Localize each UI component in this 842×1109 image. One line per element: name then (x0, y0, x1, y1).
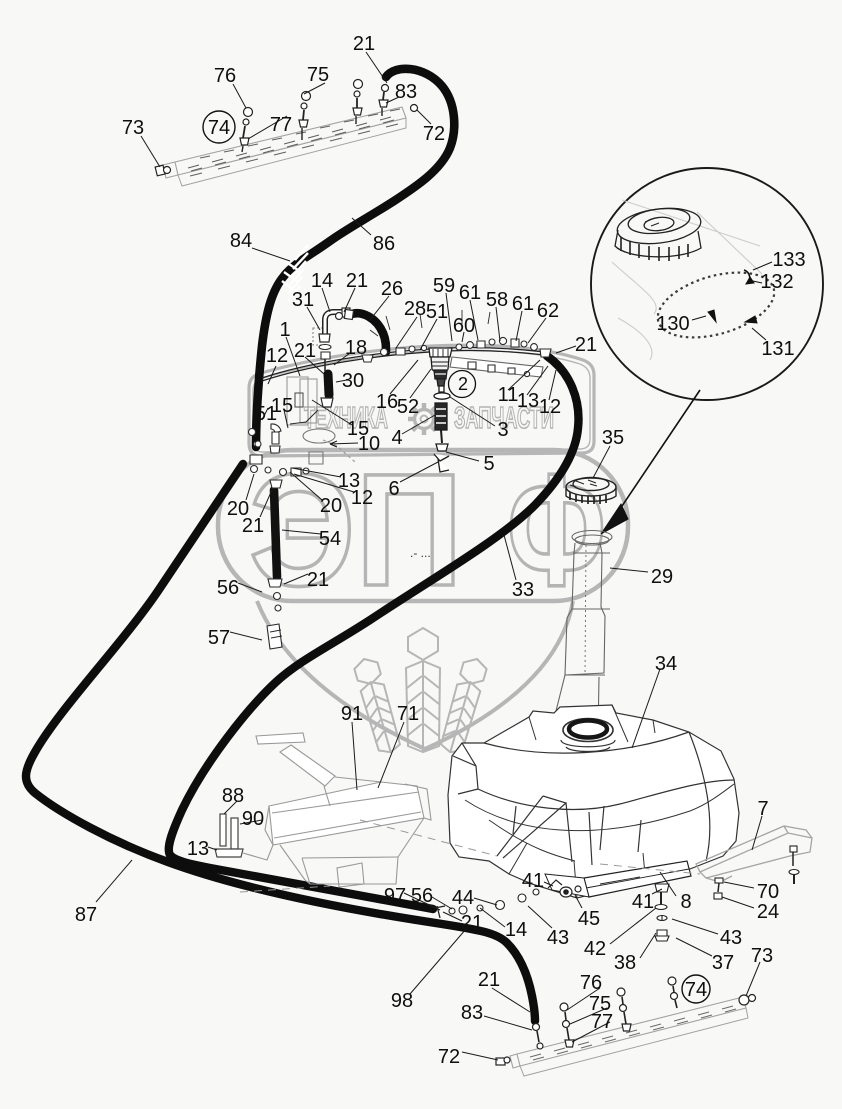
svg-text:8: 8 (680, 891, 691, 913)
svg-text:30: 30 (342, 370, 364, 392)
svg-text:12: 12 (539, 396, 561, 418)
svg-text:35: 35 (602, 427, 624, 449)
svg-text:10: 10 (358, 433, 380, 455)
svg-text:1: 1 (279, 319, 290, 341)
svg-text:51: 51 (426, 301, 448, 323)
svg-text:15: 15 (271, 395, 293, 417)
svg-text:31: 31 (292, 289, 314, 311)
svg-text:76: 76 (580, 972, 602, 994)
svg-text:44: 44 (452, 887, 474, 909)
svg-text:84: 84 (230, 230, 252, 252)
svg-text:12: 12 (351, 487, 373, 509)
svg-text:37: 37 (712, 952, 734, 974)
svg-text:130: 130 (656, 313, 689, 335)
svg-text:98: 98 (391, 990, 413, 1012)
svg-text:76: 76 (214, 65, 236, 87)
svg-text:21: 21 (461, 912, 483, 934)
svg-text:20: 20 (320, 495, 342, 517)
svg-text:21: 21 (478, 969, 500, 991)
svg-text:58: 58 (486, 289, 508, 311)
svg-text:21: 21 (294, 340, 316, 362)
svg-text:88: 88 (222, 785, 244, 807)
svg-text:12: 12 (266, 345, 288, 367)
svg-text:43: 43 (720, 927, 742, 949)
svg-text:75: 75 (307, 64, 329, 86)
svg-text:60: 60 (453, 315, 475, 337)
svg-text:41: 41 (522, 870, 544, 892)
svg-text:97: 97 (384, 885, 406, 907)
svg-text:86: 86 (373, 233, 395, 255)
svg-text:13: 13 (517, 390, 539, 412)
svg-text:83: 83 (395, 81, 417, 103)
svg-text:3: 3 (497, 419, 508, 441)
svg-text:ЭП: ЭП (249, 440, 463, 619)
svg-text:6: 6 (388, 478, 399, 500)
svg-text:21: 21 (346, 270, 368, 292)
svg-text:29: 29 (651, 566, 673, 588)
svg-text:13: 13 (187, 838, 209, 860)
svg-text:7: 7 (757, 798, 768, 820)
svg-text:11: 11 (498, 384, 519, 406)
svg-text:21: 21 (242, 515, 264, 537)
svg-text:43: 43 (547, 927, 569, 949)
svg-text:83: 83 (461, 1002, 483, 1024)
svg-text:74: 74 (208, 117, 230, 139)
svg-text:70: 70 (757, 881, 779, 903)
svg-text:4: 4 (391, 427, 402, 449)
svg-text:133: 133 (772, 249, 805, 271)
svg-text:54: 54 (319, 528, 341, 550)
svg-text:72: 72 (438, 1046, 460, 1068)
svg-text:21: 21 (307, 569, 329, 591)
svg-text:2: 2 (458, 374, 468, 394)
svg-text:14: 14 (311, 270, 333, 292)
svg-text:24: 24 (757, 901, 779, 923)
svg-text:77: 77 (270, 114, 292, 136)
svg-text:74: 74 (685, 979, 707, 1001)
svg-text:57: 57 (208, 627, 230, 649)
svg-text:5: 5 (483, 453, 494, 475)
svg-text:90: 90 (242, 808, 264, 830)
svg-text:52: 52 (397, 396, 419, 418)
svg-text:18: 18 (345, 337, 367, 359)
svg-text:14: 14 (505, 919, 527, 941)
svg-text:131: 131 (761, 338, 794, 360)
svg-text:21: 21 (575, 334, 597, 356)
svg-text:21: 21 (353, 33, 375, 55)
svg-text:72: 72 (423, 123, 445, 145)
svg-text:28: 28 (404, 298, 426, 320)
svg-text:56: 56 (217, 577, 239, 599)
svg-text:59: 59 (433, 275, 455, 297)
svg-text:34: 34 (655, 653, 677, 675)
svg-text:73: 73 (122, 117, 144, 139)
svg-text:132: 132 (760, 271, 793, 293)
svg-text:16: 16 (376, 391, 398, 413)
svg-text:61: 61 (512, 293, 534, 315)
svg-text:87: 87 (75, 904, 97, 926)
svg-text:45: 45 (578, 908, 600, 930)
svg-text:.- ...: .- ... (410, 546, 431, 560)
svg-text:33: 33 (512, 579, 534, 601)
svg-text:38: 38 (614, 952, 636, 974)
svg-text:41: 41 (632, 891, 654, 913)
svg-text:73: 73 (751, 945, 773, 967)
svg-text:62: 62 (537, 300, 559, 322)
svg-text:42: 42 (584, 938, 606, 960)
svg-text:77: 77 (591, 1011, 613, 1033)
svg-text:26: 26 (381, 278, 403, 300)
svg-text:71: 71 (397, 703, 419, 725)
svg-text:56: 56 (411, 885, 433, 907)
svg-text:61: 61 (459, 282, 481, 304)
svg-text:91: 91 (341, 703, 363, 725)
